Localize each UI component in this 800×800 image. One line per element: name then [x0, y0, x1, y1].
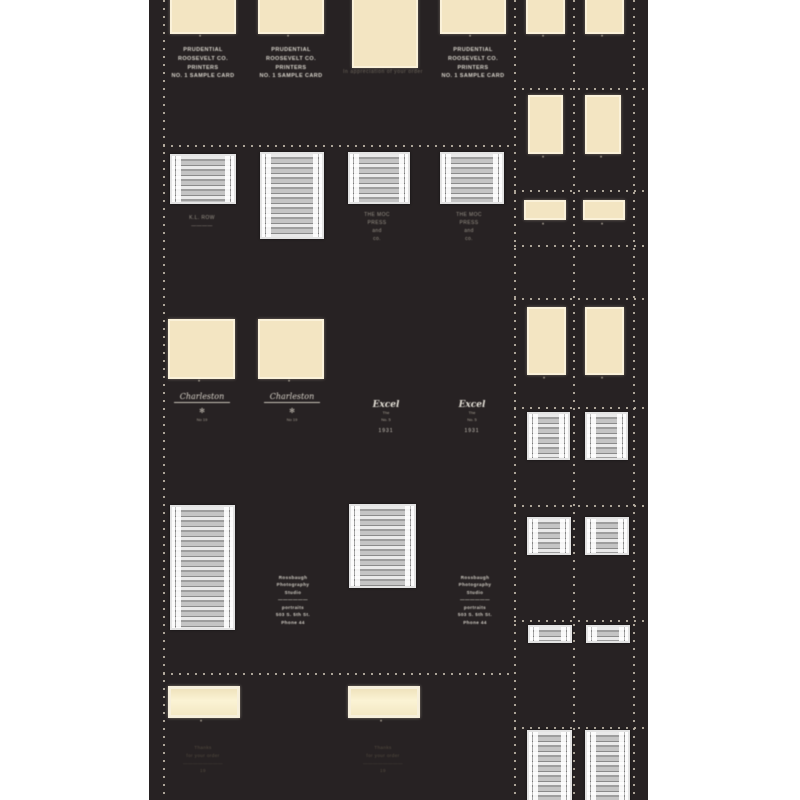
script-logo: Excel The No. 5 1931 [443, 400, 501, 434]
script-logo-text: Excel [357, 400, 415, 410]
ruled-sample-small [585, 412, 628, 460]
ruled-sample [440, 152, 504, 204]
sample-number-mark: • [601, 376, 603, 382]
sample-number-mark: • [200, 719, 202, 725]
card-sample-small [528, 95, 563, 154]
ruled-caption: K.L. ROW ―――― [169, 214, 235, 230]
ornament-sub-text: No 19 [247, 417, 337, 422]
ghost-caption: Thanks for your order ―――――――― 19 [166, 744, 240, 775]
sample-number-mark: • [288, 379, 290, 385]
card-sample [170, 0, 236, 34]
script-logo-sub: The No. 5 [357, 410, 415, 424]
studio-caption: Rossbaugh Photography Studio ―――――― port… [441, 574, 509, 626]
card-sample-bright [168, 686, 240, 718]
card-sample-tab [524, 200, 566, 220]
ruled-sample-small [527, 517, 571, 555]
ruled-sample [348, 152, 410, 204]
card-caption: PRUDENTIAL ROOSEVELT CO. PRINTERS NO. 1 … [245, 46, 337, 81]
ruled-sample-tab [528, 625, 572, 643]
sample-number-mark: • [287, 34, 289, 40]
ruled-sample-small [585, 517, 629, 555]
ghost-caption: Thanks for your order ―――――――― 19 [346, 744, 420, 775]
sample-number-mark: • [199, 34, 201, 40]
card-sample-small [585, 95, 621, 154]
guide-line-vertical [514, 0, 516, 800]
card-sample [258, 0, 324, 34]
card-sample-small [526, 0, 565, 34]
ruled-sample-small [585, 730, 630, 800]
ruled-sample-tall [170, 505, 235, 630]
sample-number-mark: • [380, 719, 382, 725]
card-sample-tab [583, 200, 625, 220]
ruled-sample-tab [586, 625, 630, 643]
script-logo-text: Excel [443, 400, 501, 410]
sample-number-mark: • [542, 34, 544, 40]
sample-number-mark: • [543, 376, 545, 382]
card-caption: PRUDENTIAL ROOSEVELT CO. PRINTERS NO. 1 … [427, 46, 519, 81]
guide-line-horizontal [514, 727, 648, 729]
sample-number-mark: • [469, 34, 471, 40]
sample-number-mark: • [600, 155, 602, 161]
ruled-sample-tall [349, 504, 416, 588]
studio-caption: Rossbaugh Photography Studio ―――――― port… [259, 574, 327, 626]
guide-line-horizontal [163, 673, 515, 675]
sample-number-mark: • [542, 155, 544, 161]
script-logo: Excel The No. 5 1931 [357, 400, 415, 434]
ornament-sub-text: No 19 [157, 417, 247, 422]
card-sample-small [585, 307, 624, 375]
signature-text: Charleston [264, 392, 320, 403]
scan-background: • • • PRUDENTIAL ROOSEVELT CO. PRINTERS … [0, 0, 800, 800]
specimen-sheet: • • • PRUDENTIAL ROOSEVELT CO. PRINTERS … [149, 0, 648, 800]
script-logo-foot: 1931 [357, 428, 415, 434]
card-sample [440, 0, 506, 34]
sample-number-mark: • [198, 379, 200, 385]
card-caption-center: In appreciation of your order [338, 69, 428, 75]
card-sample [168, 319, 235, 379]
ornament-icon: ✻ [157, 407, 247, 417]
guide-line-horizontal [514, 190, 648, 192]
press-caption: THE MOC PRESS and co. [335, 211, 419, 243]
guide-line-horizontal [514, 245, 648, 247]
press-caption: THE MOC PRESS and co. [427, 211, 511, 243]
ruled-sample [170, 154, 236, 204]
signature-caption: Charleston ✻ No 19 [157, 386, 247, 422]
sample-number-mark: • [601, 34, 603, 40]
ruled-sample-small [527, 730, 572, 800]
guide-line-horizontal [514, 407, 648, 409]
script-logo-sub: The No. 5 [443, 410, 501, 424]
guide-line-horizontal [514, 88, 648, 90]
card-sample [258, 319, 324, 379]
script-logo-foot: 1931 [443, 428, 501, 434]
card-sample-small [585, 0, 624, 34]
guide-line-horizontal [163, 145, 515, 147]
guide-line-vertical [633, 0, 635, 800]
guide-line-horizontal [514, 620, 648, 622]
signature-text: Charleston [174, 392, 230, 403]
ruled-sample-tall [260, 152, 324, 239]
guide-line-horizontal [514, 298, 648, 300]
signature-caption: Charleston ✻ No 19 [247, 386, 337, 422]
card-sample-small [527, 307, 566, 375]
card-sample-tall [352, 0, 418, 68]
ornament-icon: ✻ [247, 407, 337, 417]
ruled-sample-small [527, 412, 570, 460]
guide-line-horizontal [514, 505, 648, 507]
guide-line-vertical [573, 0, 575, 800]
card-sample-bright [348, 686, 420, 718]
card-caption: PRUDENTIAL ROOSEVELT CO. PRINTERS NO. 1 … [157, 46, 249, 81]
sample-number-mark: • [542, 222, 544, 228]
sample-number-mark: • [601, 222, 603, 228]
